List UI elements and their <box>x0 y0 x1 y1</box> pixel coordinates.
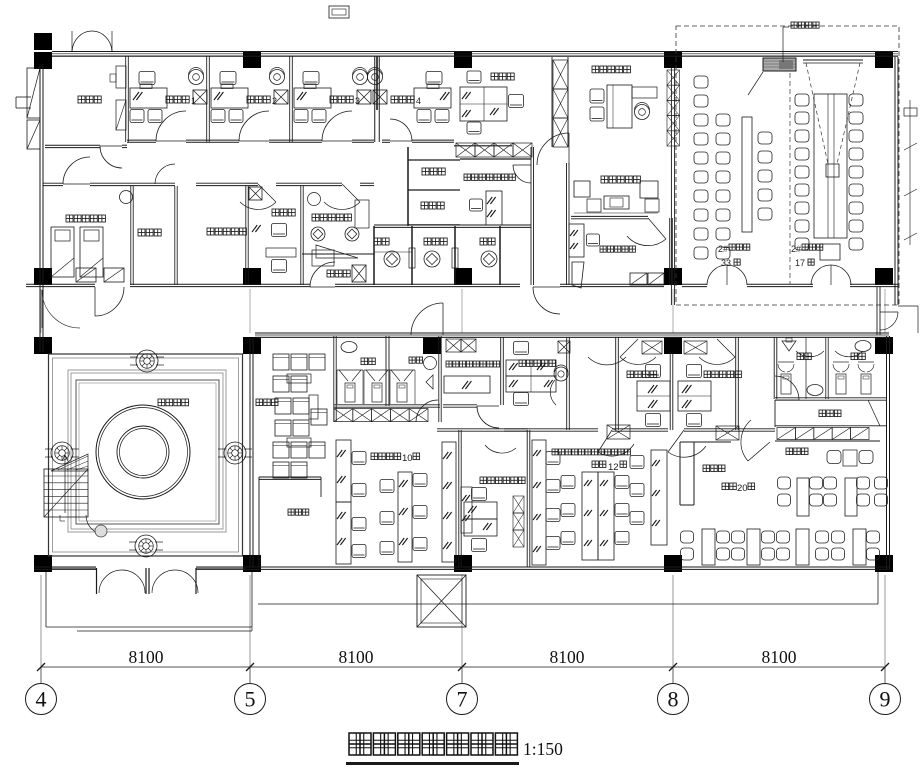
svg-text:10: 10 <box>402 453 413 464</box>
svg-text:3: 3 <box>355 96 360 106</box>
svg-text:9: 9 <box>880 687 891 712</box>
svg-text:1: 1 <box>191 96 196 106</box>
svg-text:8: 8 <box>668 687 679 712</box>
svg-text:2#: 2# <box>791 244 801 254</box>
svg-text:4: 4 <box>36 687 47 712</box>
svg-text:2#: 2# <box>718 244 728 254</box>
svg-text:7: 7 <box>457 687 468 712</box>
svg-text:8100: 8100 <box>339 647 374 667</box>
svg-text:20: 20 <box>737 483 748 494</box>
svg-text:5: 5 <box>245 687 256 712</box>
svg-text:4: 4 <box>416 96 421 106</box>
svg-text:17: 17 <box>795 258 805 268</box>
svg-text:8100: 8100 <box>129 647 164 667</box>
svg-text:12: 12 <box>608 462 619 473</box>
svg-text:33: 33 <box>721 258 731 268</box>
svg-text:8100: 8100 <box>762 647 797 667</box>
svg-text:1:150: 1:150 <box>523 739 563 759</box>
svg-text:8100: 8100 <box>550 647 585 667</box>
svg-text:2: 2 <box>272 96 277 106</box>
